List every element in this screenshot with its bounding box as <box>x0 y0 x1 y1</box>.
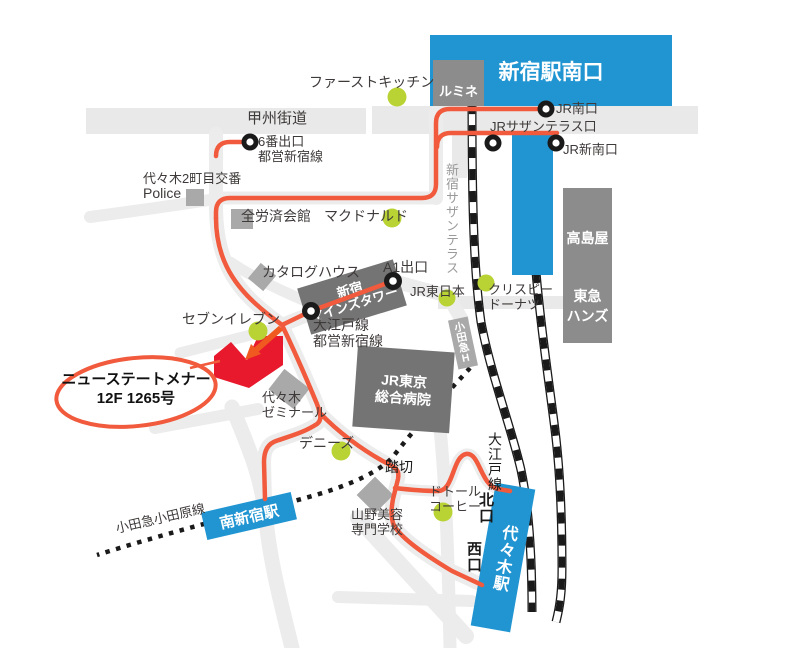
zenrosai-label: 全労済会館 <box>241 209 311 224</box>
yamano-label: 山野美容 専門学校 <box>351 507 403 537</box>
jr-shin-minami-marker <box>548 135 565 152</box>
yoyogi-seminar-label-1: 代々木 <box>262 390 327 405</box>
oedo-toei-label-2: 都営新宿線 <box>313 333 383 349</box>
dennys-label: デニーズ <box>299 436 354 451</box>
oedo-toei-label: 大江戸線 都営新宿線 <box>313 317 383 349</box>
route-map: 新宿駅南口 ルミネ 高島屋 東急 ハンズ 新宿 マインズタワー JR東京 総合病… <box>0 0 798 648</box>
fumikiri-label: 踏切 <box>385 460 413 475</box>
yamano-label-2: 専門学校 <box>351 522 403 537</box>
krispy-label-2: ドーナツ <box>488 297 553 312</box>
southern-terrace-marker <box>485 135 502 152</box>
krispy-label: クリスピー ドーナツ <box>488 282 553 312</box>
destination-name: ニューステートメナー <box>56 370 216 389</box>
kita-exit-label: 北口 <box>478 492 493 524</box>
first-kitchen-dot <box>388 88 407 107</box>
dotour-label-2: コーヒー <box>429 499 481 514</box>
destination-room: 12F 1265号 <box>56 389 216 408</box>
first-kitchen-label: ファーストキッチン <box>309 75 434 90</box>
exit6-label-2: 都営新宿線 <box>258 149 323 164</box>
exit6-label: 6番出口 都営新宿線 <box>258 134 323 164</box>
seven-eleven-label: セブンイレブン <box>182 312 280 327</box>
southern-terrace-exit-label: JRサザンテラス口 <box>490 119 597 134</box>
route-layer <box>0 0 798 648</box>
krispy-label-1: クリスピー <box>488 282 553 297</box>
destination-callout-text: ニューステートメナー 12F 1265号 <box>56 370 216 408</box>
mcdonalds-label: マクドナルド <box>324 209 408 224</box>
jr-shin-minami-exit-label: JR新南口 <box>563 142 618 157</box>
yamano-label-1: 山野美容 <box>351 507 403 522</box>
jr-east-label: JR東日本 <box>410 284 465 299</box>
destination-building <box>214 336 283 388</box>
dotour-label: ドトール コーヒー <box>429 484 481 514</box>
dotour-label-1: ドトール <box>429 484 481 499</box>
nishi-exit-label: 西口 <box>466 541 481 573</box>
koban-label-en: Police <box>143 186 241 201</box>
a1-exit-label: A1出口 <box>383 260 428 275</box>
jr-minami-marker <box>538 101 555 118</box>
yoyogi-seminar-label-2: ゼミナール <box>262 405 327 420</box>
oedo-line-label: 大江戸線 <box>487 432 502 492</box>
catalog-house-label: カタログハウス <box>262 265 360 280</box>
exit6-marker <box>242 134 259 151</box>
oedo-toei-label-1: 大江戸線 <box>313 317 383 333</box>
koban-label-jp: 代々木2町目交番 <box>143 171 241 186</box>
southern-terrace-walk-label: 新宿サザンテラス <box>444 163 459 275</box>
yoyogi-seminar-label: 代々木 ゼミナール <box>262 390 327 420</box>
koshu-kaido-label: 甲州街道 <box>247 111 307 126</box>
exit6-label-1: 6番出口 <box>258 134 323 149</box>
jr-minami-exit-label: JR南口 <box>556 101 598 116</box>
koban-label: 代々木2町目交番 Police <box>143 171 241 201</box>
